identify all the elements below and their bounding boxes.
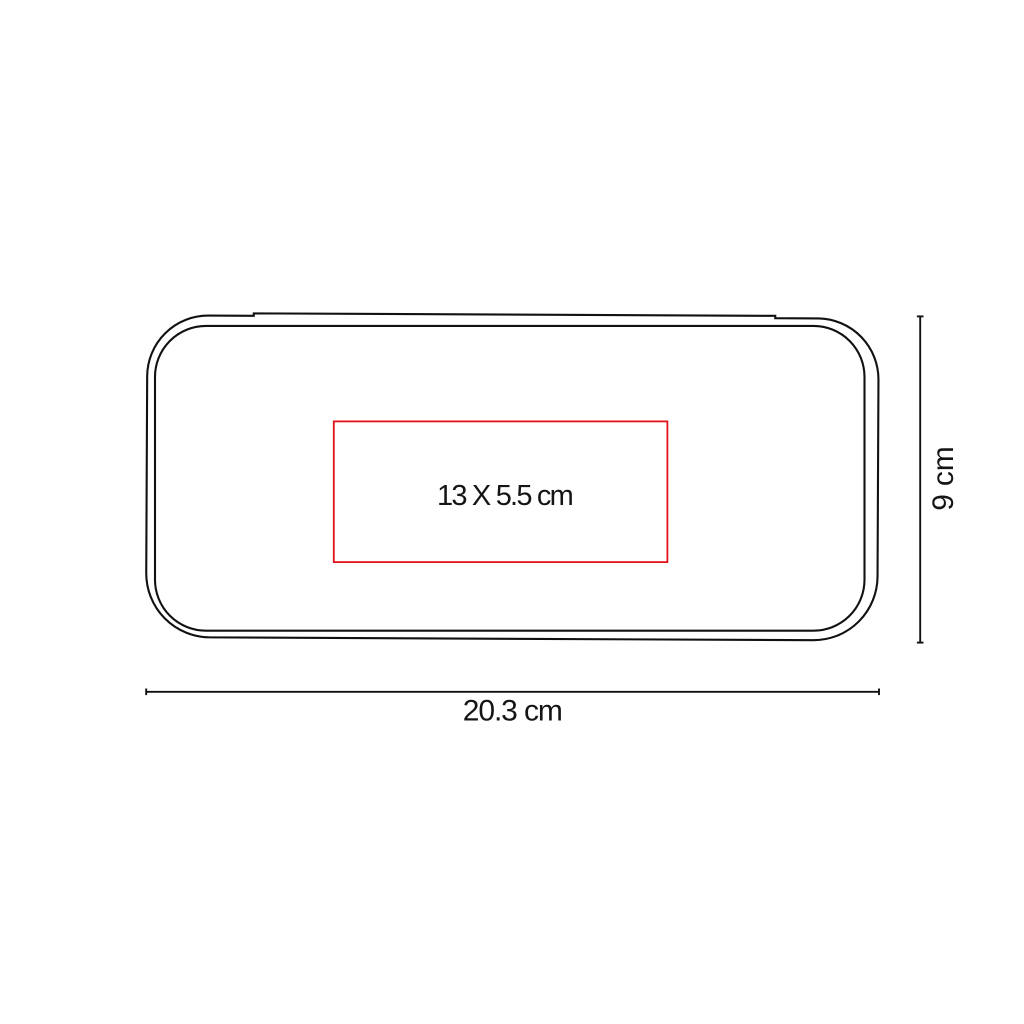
svg-text:20.3 cm: 20.3 cm <box>463 695 562 728</box>
svg-text:9 cm: 9 cm <box>927 446 960 510</box>
svg-text:13 X 5.5 cm: 13 X 5.5 cm <box>437 480 573 512</box>
